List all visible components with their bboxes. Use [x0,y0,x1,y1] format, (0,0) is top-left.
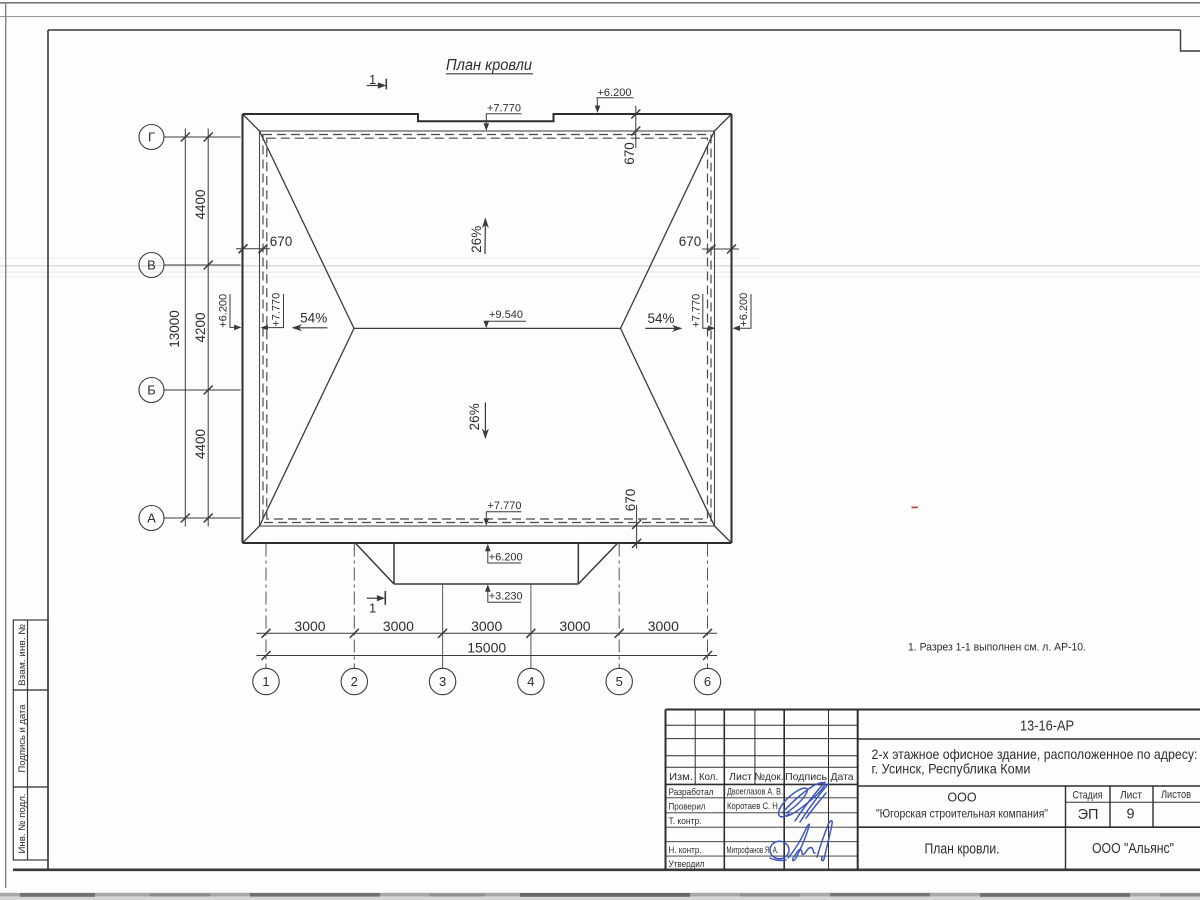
svg-text:15000: 15000 [467,640,506,656]
svg-text:Дата: Дата [831,771,854,783]
svg-text:2: 2 [351,674,358,689]
svg-text:План кровли: План кровли [446,57,532,74]
svg-text:Лист: Лист [729,771,752,783]
svg-text:3000: 3000 [559,618,590,634]
svg-text:Г: Г [148,130,155,145]
svg-text:3000: 3000 [383,618,414,634]
svg-text:1. Разрез 1-1 выполнен см. л.: 1. Разрез 1-1 выполнен см. л. АР-10. [908,642,1086,654]
svg-text:ЭП: ЭП [1078,807,1099,823]
svg-text:Т. контр.: Т. контр. [669,816,702,827]
svg-text:1: 1 [369,72,376,87]
svg-text:ООО: ООО [947,791,976,805]
svg-text:3: 3 [439,674,446,689]
svg-text:Разработал: Разработал [669,787,714,798]
svg-text:5: 5 [616,674,623,689]
svg-text:ООО "Альянс": ООО "Альянс" [1092,841,1174,857]
svg-text:Проверил: Проверил [669,802,706,813]
svg-text:54%: 54% [647,311,674,326]
svg-text:Лист: Лист [1120,790,1142,802]
svg-text:+3.230: +3.230 [489,591,523,603]
svg-text:Изм.: Изм. [669,771,693,783]
svg-text:4400: 4400 [193,189,208,219]
svg-text:+6.200: +6.200 [489,551,523,563]
svg-text:670: 670 [623,489,638,512]
svg-text:13000: 13000 [167,310,182,348]
svg-text:"Югорская строительная компани: "Югорская строительная компания" [876,807,1048,821]
svg-text:В: В [147,258,156,273]
svg-text:4400: 4400 [193,429,208,459]
svg-text:+7.770: +7.770 [488,500,522,512]
svg-text:+6.200: +6.200 [738,293,750,327]
svg-text:26%: 26% [469,226,484,253]
svg-text:Кол.: Кол. [699,771,718,783]
svg-text:4: 4 [527,674,534,689]
svg-text:г. Усинск, Республика Коми: г. Усинск, Республика Коми [872,761,1031,777]
svg-text:670: 670 [679,234,702,249]
svg-text:6: 6 [704,674,711,689]
svg-text:+9.540: +9.540 [489,309,523,321]
svg-text:Взам. инв. №: Взам. инв. № [17,624,28,686]
svg-text:+7.770: +7.770 [691,294,703,328]
svg-text:+6.200: +6.200 [218,294,230,328]
svg-text:Двоеглазов А. В.: Двоеглазов А. В. [727,787,783,797]
svg-text:Инв. № подл.: Инв. № подл. [17,794,28,854]
svg-text:План кровли.: План кровли. [925,841,1000,858]
svg-text:+6.200: +6.200 [598,87,632,99]
svg-text:26%: 26% [467,403,482,430]
svg-text:Подпись и дата: Подпись и дата [17,704,28,773]
svg-text:Подпись: Подпись [785,771,828,783]
svg-text:Коротаев С. Н.: Коротаев С. Н. [727,801,780,811]
svg-text:Утвердил: Утвердил [669,859,705,870]
svg-text:+7.770: +7.770 [271,293,283,327]
svg-text:1: 1 [262,674,269,689]
svg-text:Б: Б [147,383,156,398]
svg-text:Листов: Листов [1161,789,1191,801]
svg-text:54%: 54% [300,311,327,326]
svg-text:3000: 3000 [471,618,502,634]
svg-text:3000: 3000 [294,618,325,634]
svg-text:+7.770: +7.770 [487,103,521,115]
svg-text:670: 670 [622,142,637,165]
svg-text:А: А [147,511,156,526]
svg-text:Н. контр.: Н. контр. [669,845,702,856]
svg-text:9: 9 [1126,807,1134,823]
svg-text:13-16-АР: 13-16-АР [1020,718,1074,735]
svg-text:3000: 3000 [648,618,679,634]
svg-text:№док.: №док. [755,771,784,783]
svg-text:Стадия: Стадия [1073,790,1103,802]
svg-text:670: 670 [270,234,293,249]
svg-text:1: 1 [369,601,376,616]
svg-text:4200: 4200 [193,312,208,342]
